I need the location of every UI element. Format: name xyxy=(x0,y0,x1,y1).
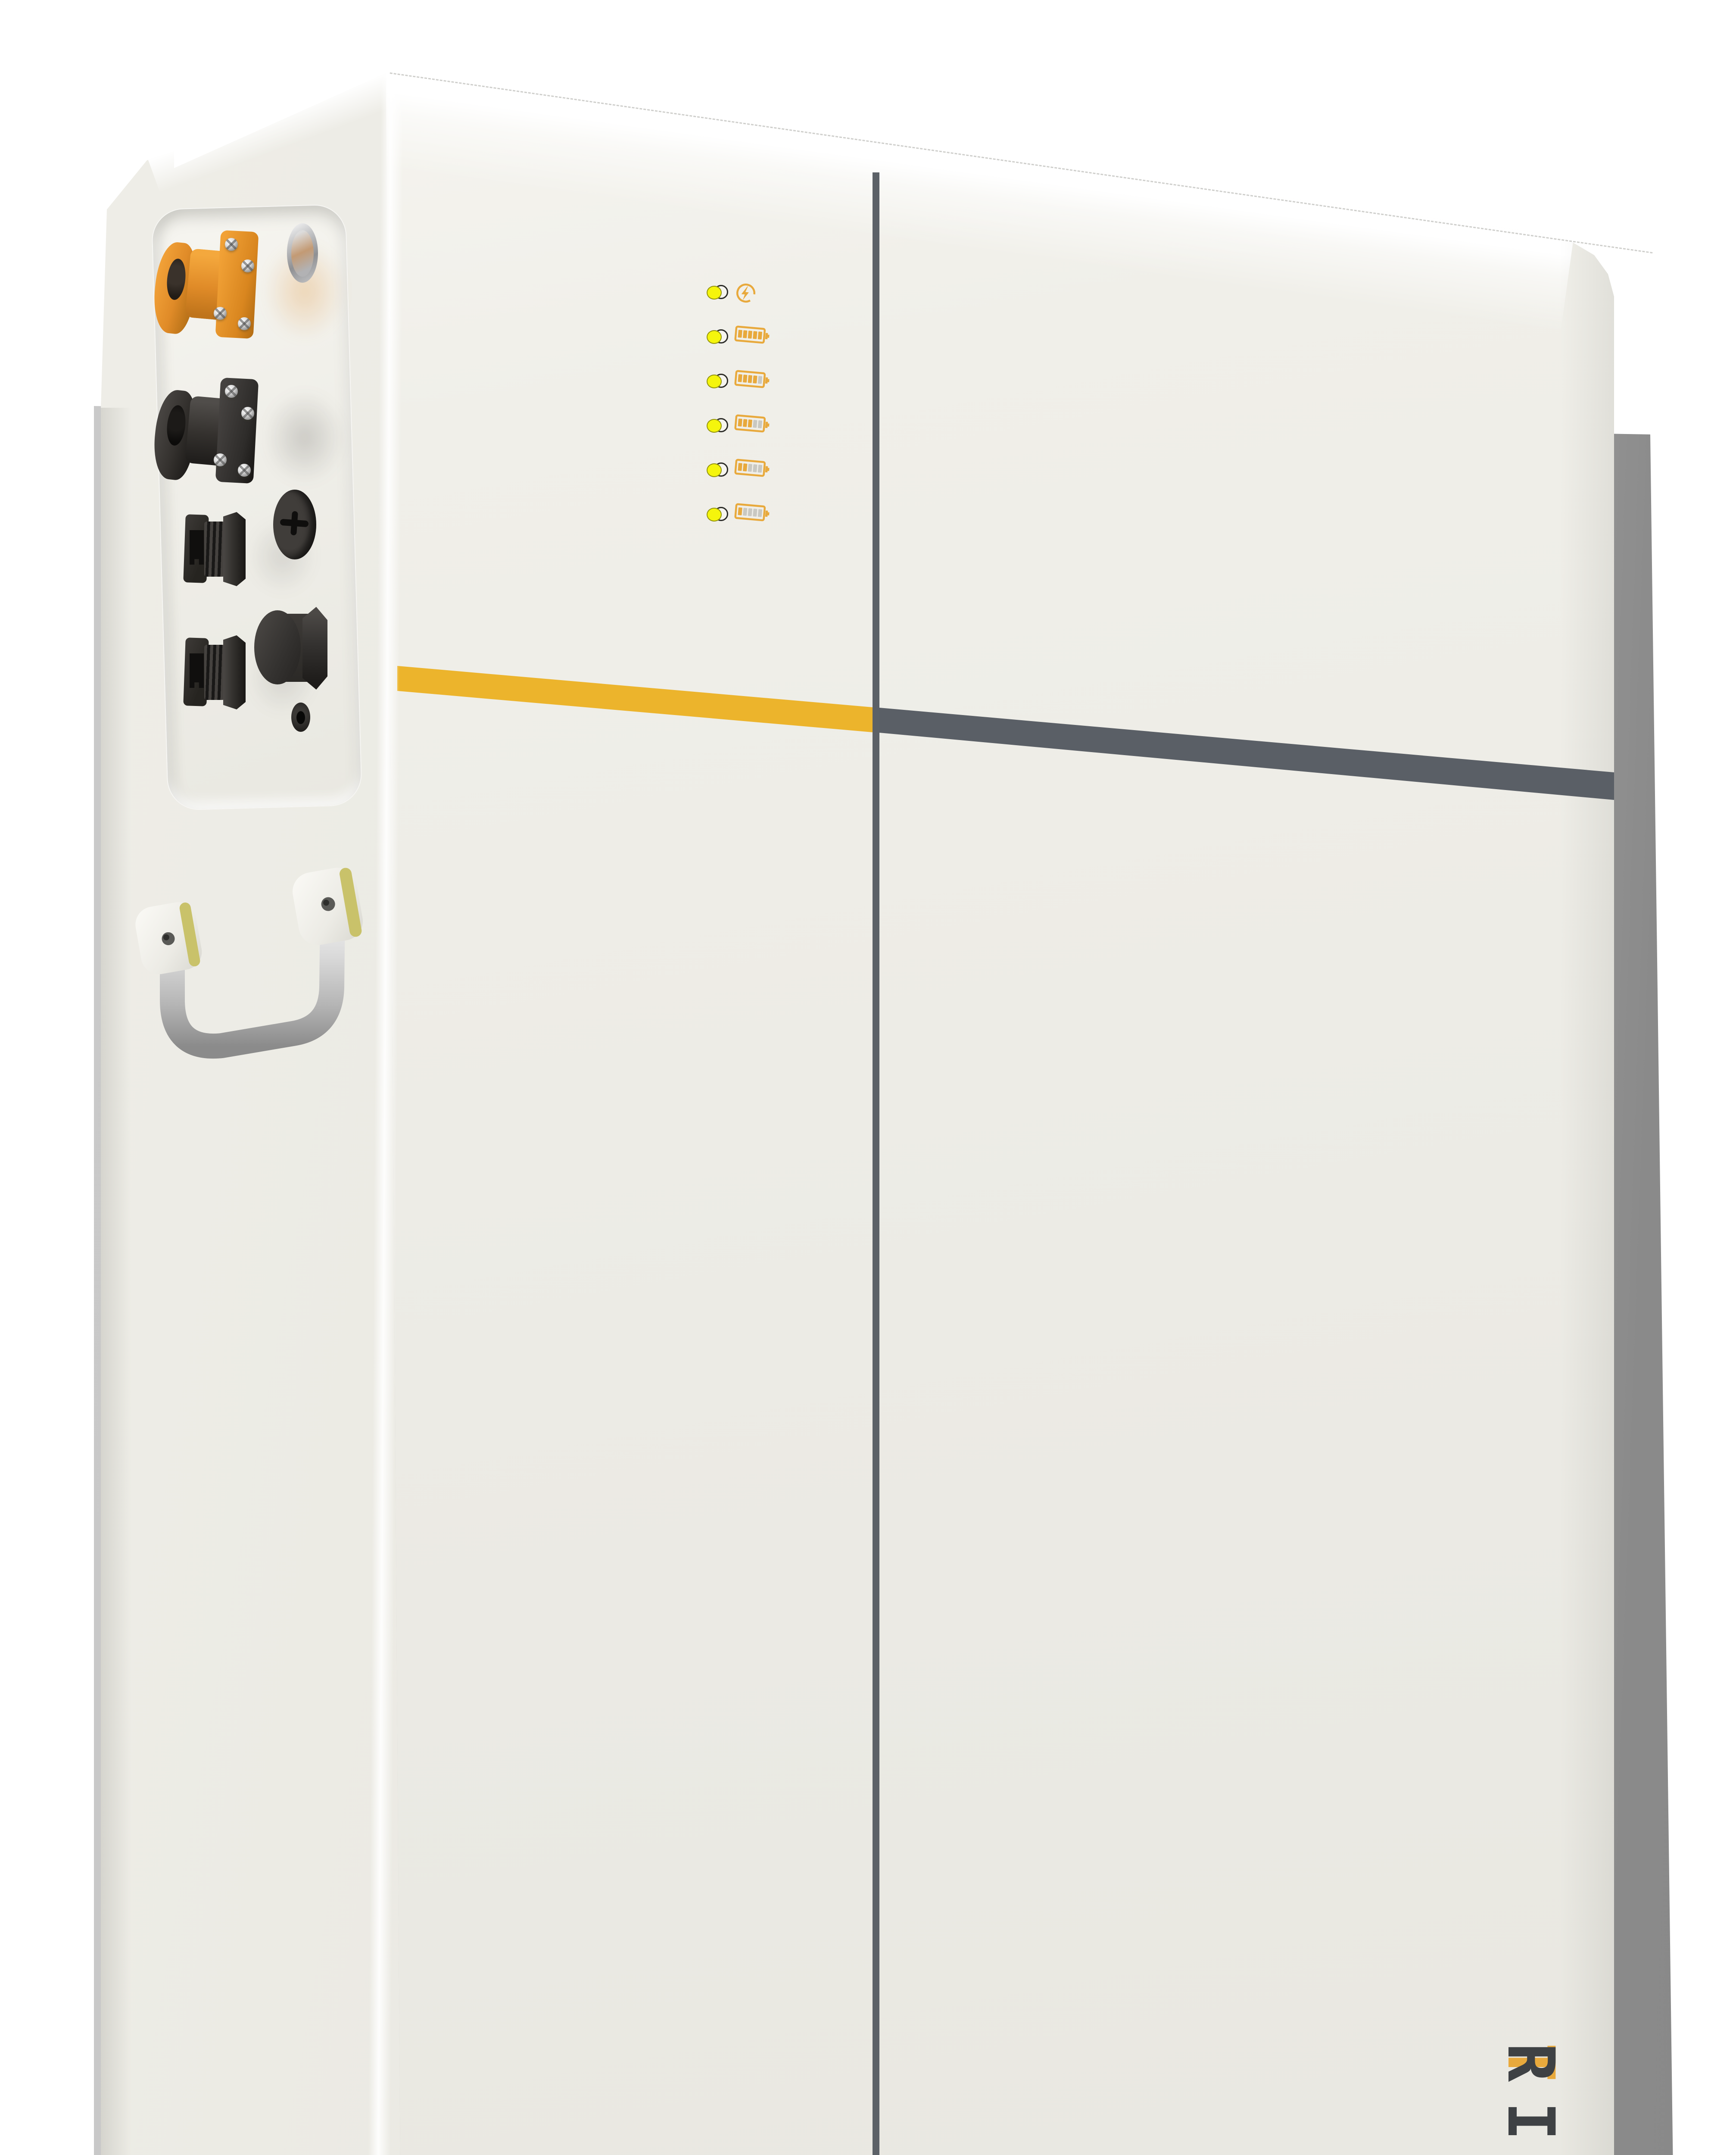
screw xyxy=(225,385,238,398)
led-dot xyxy=(707,508,722,522)
product-render: TRIPLE POWER xyxy=(0,0,1736,2155)
screw xyxy=(241,259,254,272)
battery-level-icon xyxy=(735,459,772,481)
screw xyxy=(214,453,227,466)
status-led xyxy=(707,506,728,523)
left-edge-shading xyxy=(101,408,131,2155)
brand-logo: TRIPLE xyxy=(1493,2043,1568,2155)
carry-handle xyxy=(125,858,375,1082)
indicator-row xyxy=(701,367,805,395)
battery-level-icon xyxy=(735,326,772,348)
charge-icon xyxy=(735,282,772,303)
right-edge-shading xyxy=(1560,241,1614,2155)
screw xyxy=(225,238,238,251)
handle-bracket-right xyxy=(290,865,366,948)
battery-level-icon xyxy=(735,504,772,525)
status-led xyxy=(707,329,728,345)
status-led xyxy=(707,418,728,434)
indicator-row xyxy=(701,278,805,306)
plug-face xyxy=(254,610,301,684)
round-metal-button-face xyxy=(291,230,314,277)
rj45-port-2 xyxy=(184,634,249,712)
led-dot xyxy=(707,375,722,388)
brand-rest-letters: RIPLE xyxy=(1493,2043,1568,2155)
front-top-edge-highlight xyxy=(365,68,1574,332)
led-dot xyxy=(707,463,722,477)
screw xyxy=(214,307,227,320)
indicator-row xyxy=(701,323,805,350)
status-led xyxy=(707,462,728,478)
handle-bracket-left xyxy=(133,899,205,977)
status-led xyxy=(707,284,728,301)
connector-reflection xyxy=(264,390,346,485)
port-nut xyxy=(223,635,246,709)
led-dot xyxy=(707,419,722,433)
screw xyxy=(241,407,254,420)
led-dot xyxy=(707,286,722,300)
port-nut xyxy=(223,512,246,586)
led-dot xyxy=(707,330,722,344)
screw xyxy=(238,317,251,330)
indicator-row xyxy=(701,500,805,528)
battery-level-icon xyxy=(735,415,772,437)
plug-nut xyxy=(302,607,327,690)
side-top-edge-highlight xyxy=(144,60,403,193)
rj45-port-1 xyxy=(184,511,249,589)
port-threads xyxy=(204,522,225,577)
indicator-panel xyxy=(701,278,805,546)
status-led xyxy=(707,373,728,390)
indicator-row xyxy=(701,456,805,484)
indicator-row xyxy=(701,412,805,439)
port-threads xyxy=(204,645,225,700)
screw xyxy=(238,464,251,477)
battery-level-icon xyxy=(735,371,772,392)
grommet-hole xyxy=(296,711,305,724)
